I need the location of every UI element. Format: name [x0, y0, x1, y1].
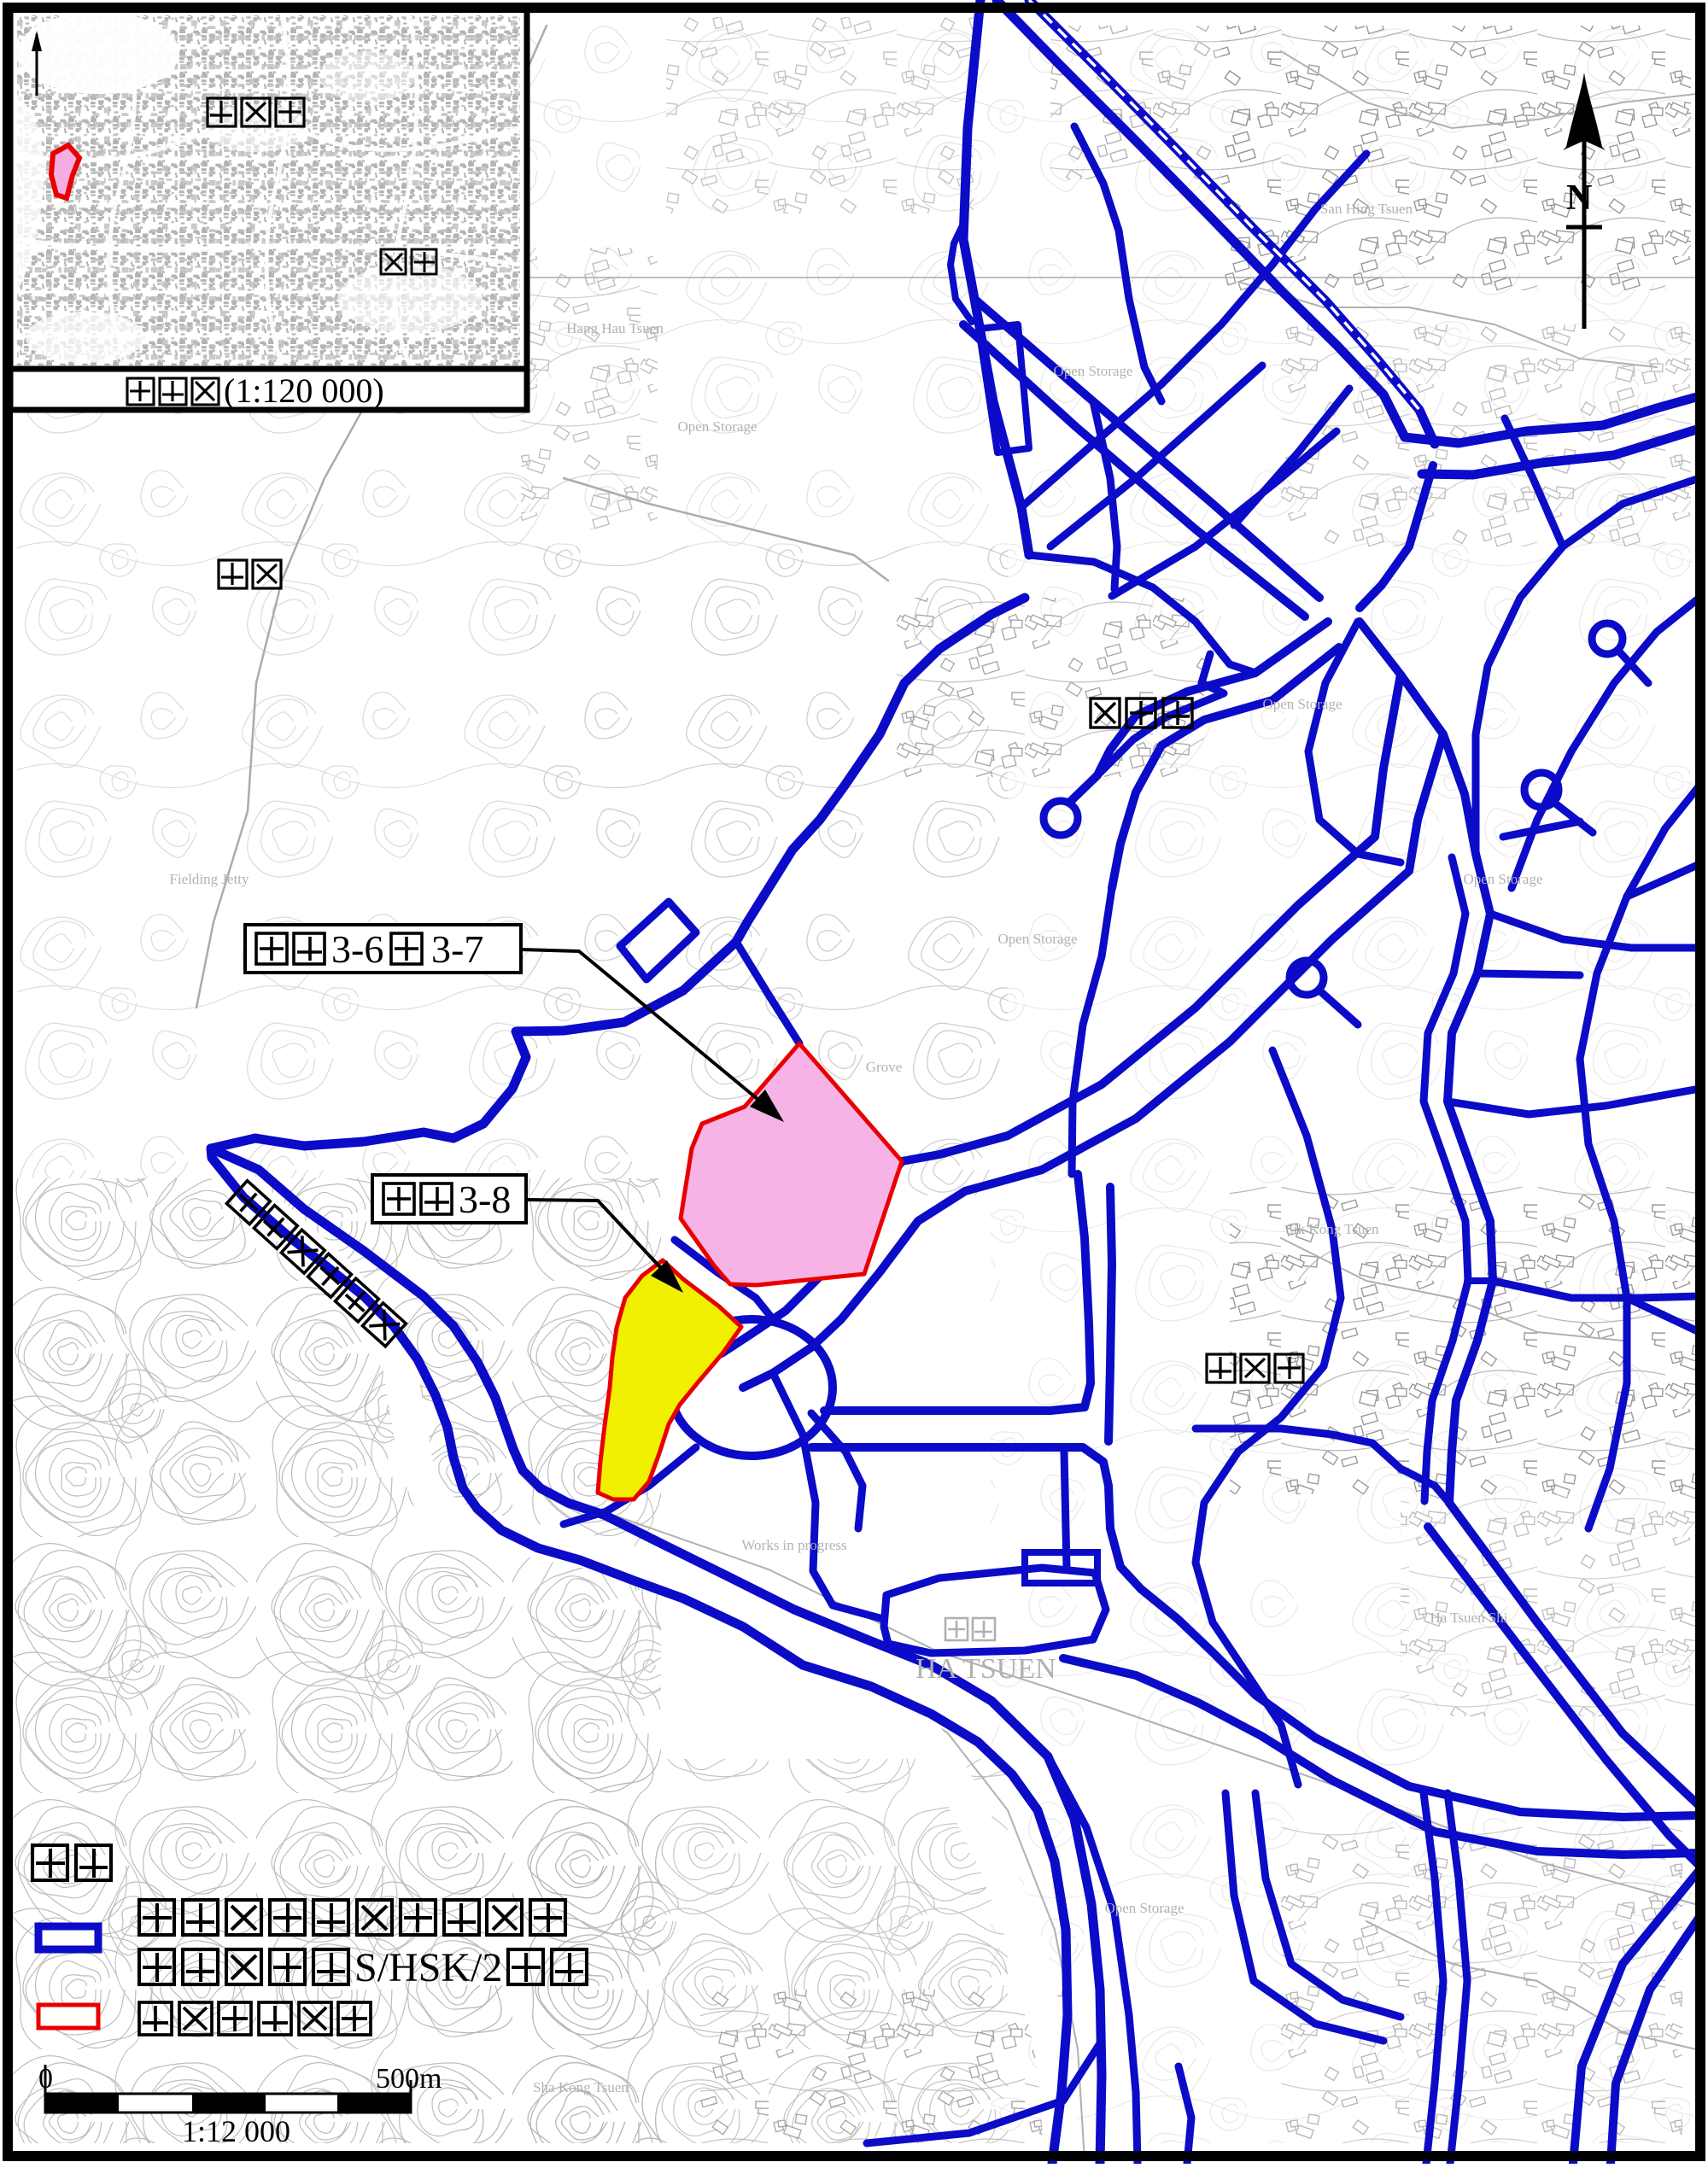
svg-text:N: N	[1566, 178, 1592, 218]
svg-text:(1:120 000): (1:120 000)	[224, 371, 384, 410]
svg-text:Works in progress: Works in progress	[741, 1537, 846, 1553]
svg-text:500m: 500m	[376, 2063, 442, 2095]
svg-text:San Hing Tsuen: San Hing Tsuen	[1320, 201, 1413, 217]
svg-text:HA TSUEN: HA TSUEN	[915, 1653, 1056, 1685]
svg-text:S/HSK/2: S/HSK/2	[354, 1945, 502, 1990]
svg-text:Open Storage: Open Storage	[1053, 363, 1132, 379]
svg-text:Open Storage: Open Storage	[997, 931, 1077, 947]
svg-text:Open Storage: Open Storage	[1463, 871, 1542, 887]
svg-text:Fielding Jetty: Fielding Jetty	[169, 871, 249, 887]
svg-text:Hang Hau Tsuen: Hang Hau Tsuen	[566, 320, 664, 336]
svg-text:Sha Kong Tsuen: Sha Kong Tsuen	[533, 2079, 629, 2095]
svg-text:3-6: 3-6	[331, 927, 383, 971]
svg-text:1:12 000: 1:12 000	[182, 2114, 290, 2148]
svg-text:Sik Kong Tsuen: Sik Kong Tsuen	[1285, 1221, 1379, 1237]
svg-text:3-7: 3-7	[431, 927, 483, 971]
svg-text:Grove: Grove	[866, 1059, 902, 1075]
svg-text:Open Storage: Open Storage	[1104, 1900, 1184, 1916]
svg-text:Open Storage: Open Storage	[677, 418, 757, 435]
svg-text:Open Storage: Open Storage	[1262, 696, 1342, 712]
svg-text:Ha Tsuen Shi: Ha Tsuen Shi	[1430, 1610, 1507, 1626]
svg-text:3-8: 3-8	[459, 1177, 511, 1221]
